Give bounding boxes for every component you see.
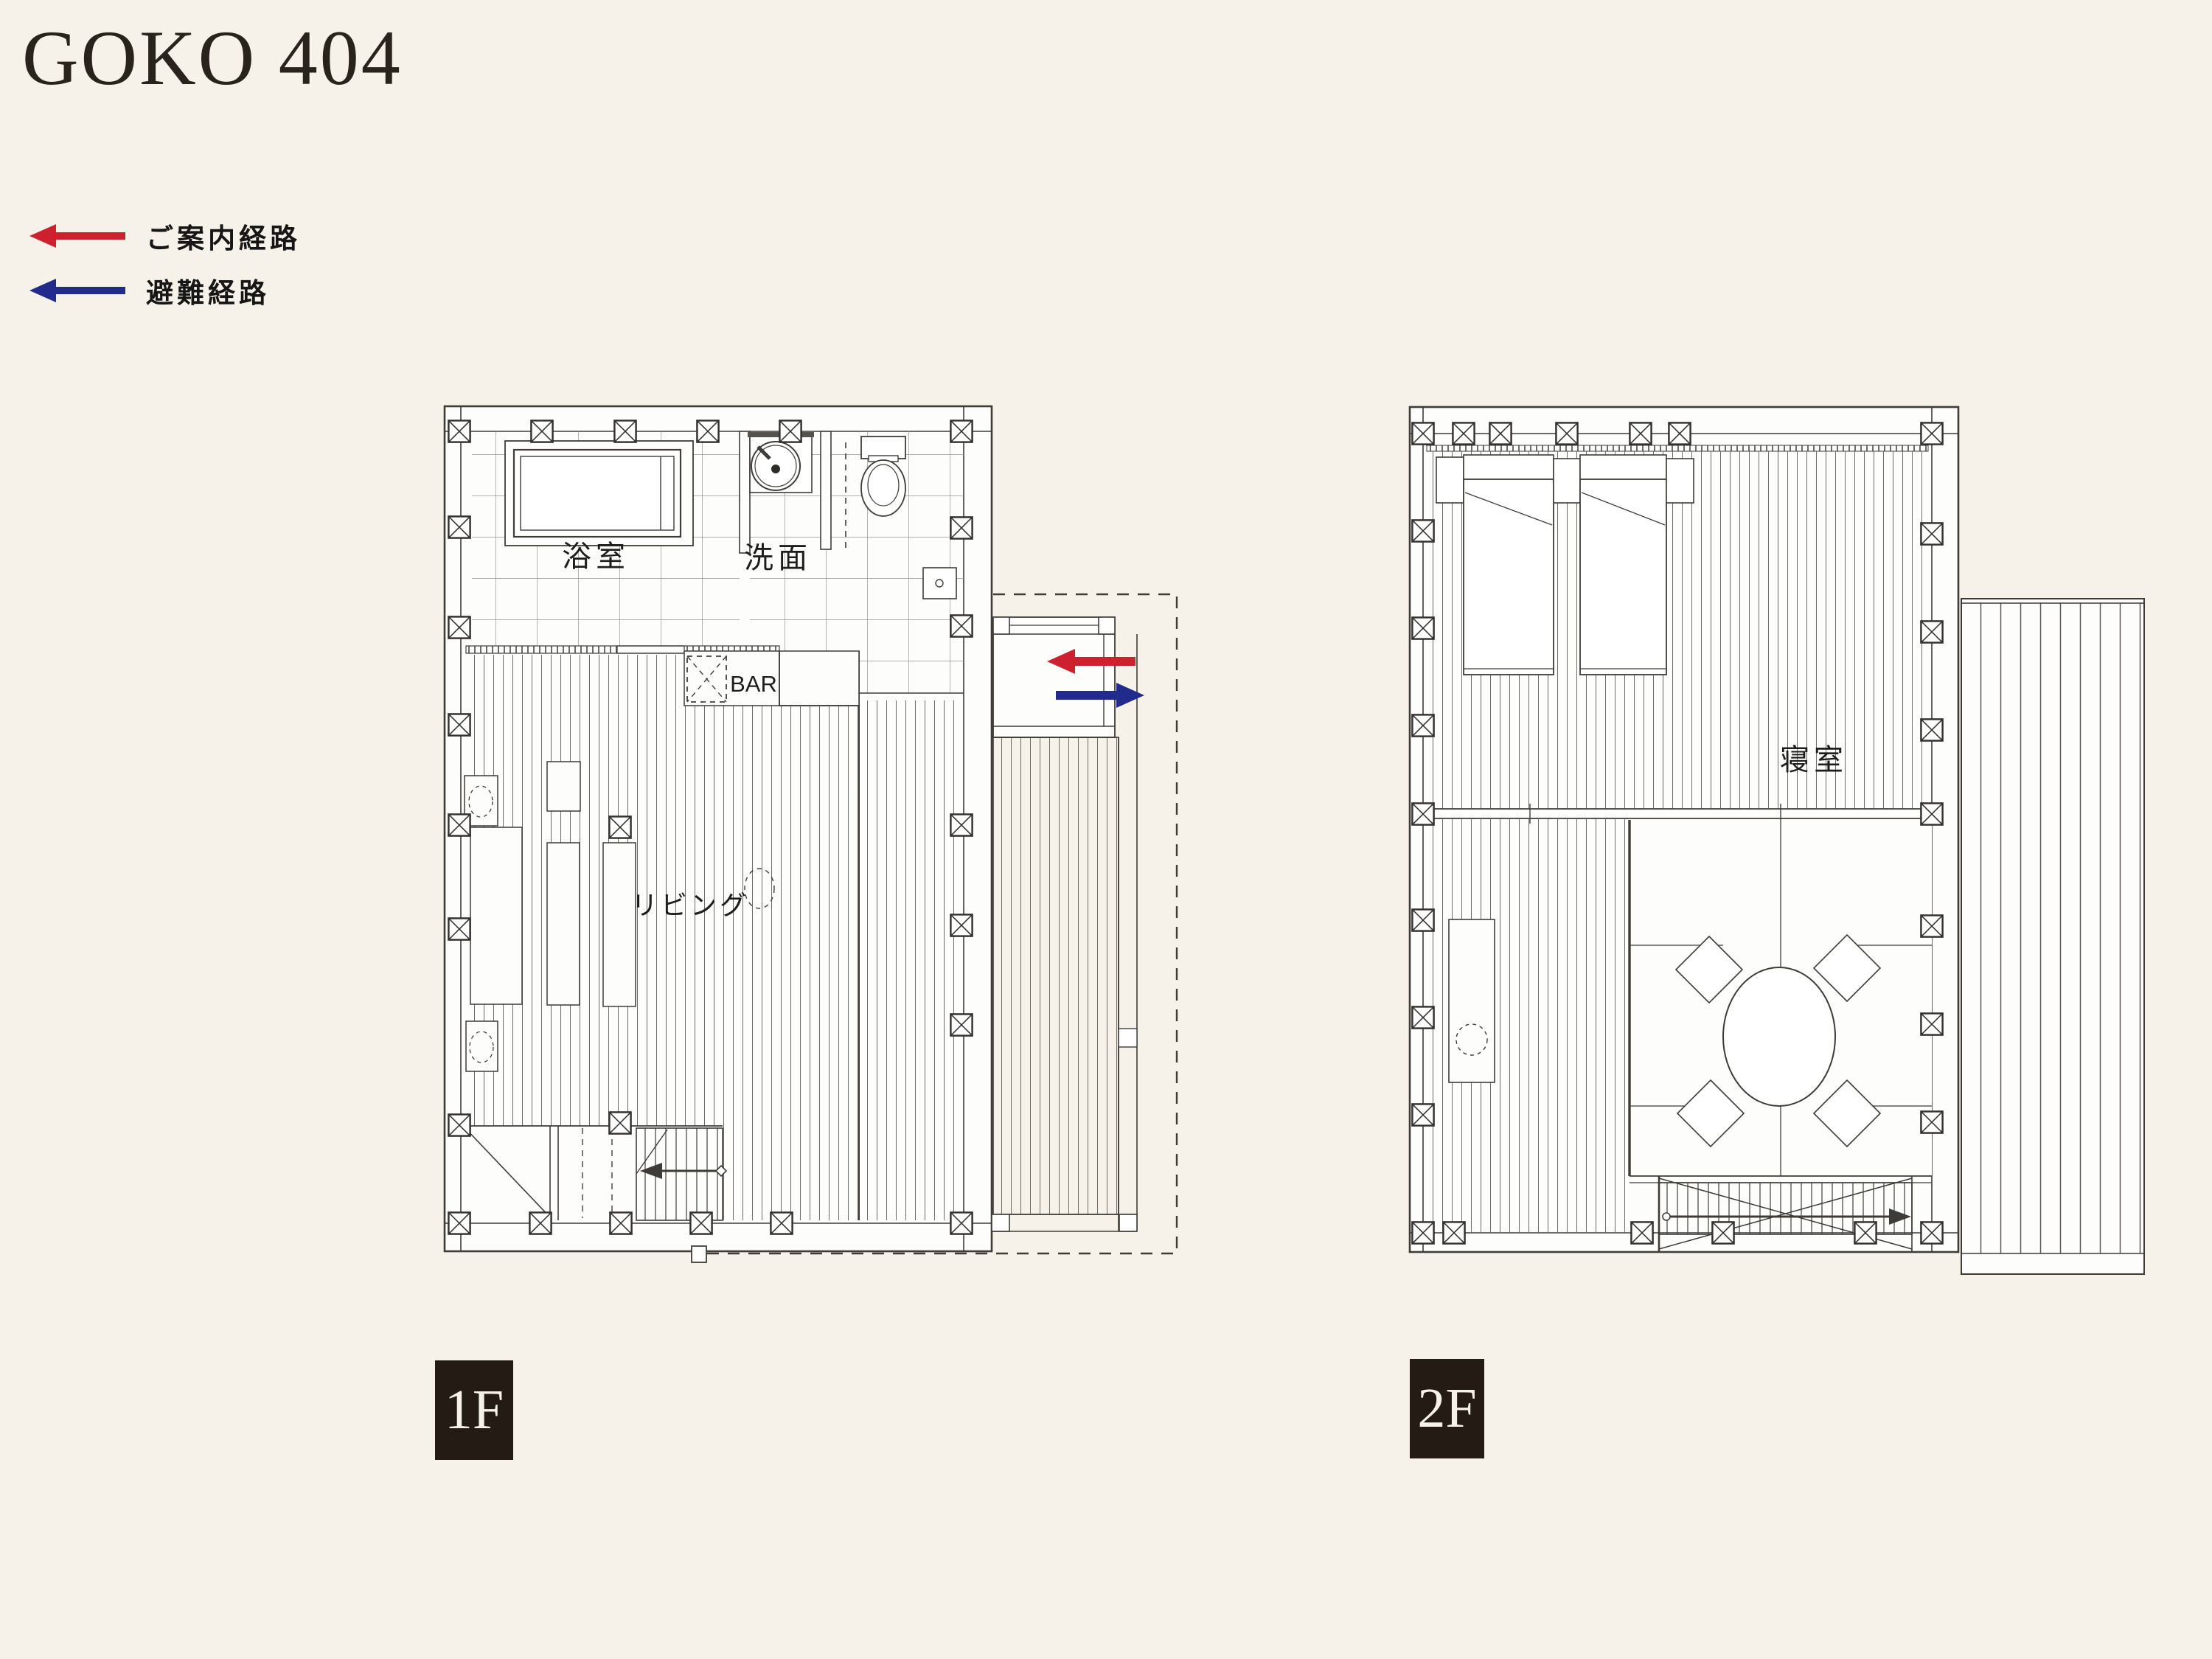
floor-plan-sheet: GOKO 404 ご案内経路 避難経路 <box>0 0 2212 1659</box>
living-label: リビング <box>631 890 749 920</box>
deck-2f <box>1961 599 2144 1274</box>
stairs-1f <box>465 1126 726 1220</box>
tatami-area <box>1630 820 1932 1183</box>
floor-badge-2f: 2F <box>1410 1359 1484 1458</box>
bedroom-area: 寝室 <box>1432 451 1923 809</box>
bedroom-label: 寝室 <box>1780 744 1848 776</box>
bathroom-label: 浴室 <box>562 540 630 573</box>
floor-badge-1f: 1F <box>435 1360 513 1460</box>
bench <box>1449 919 1495 1082</box>
floor-plan-1f: リビング BAR 浴室 洗面 <box>445 406 1177 1262</box>
floor-plan-2f: 寝室 <box>1410 407 2144 1274</box>
floor-plans-drawing: リビング BAR 浴室 洗面 <box>0 0 2212 1659</box>
bar-label: BAR <box>730 671 777 697</box>
toilet <box>861 437 905 516</box>
washroom-label: 洗面 <box>744 542 812 574</box>
heater-box <box>923 568 956 599</box>
